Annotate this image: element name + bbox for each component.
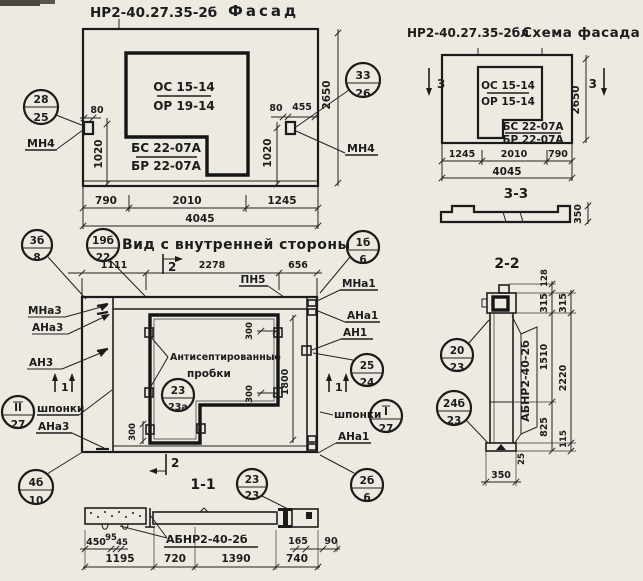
inner-view-drawing: 3б 8 19б 22 Вид с внутренней стороны 1б …	[2, 229, 402, 507]
svg-text:МН4: МН4	[347, 142, 375, 155]
svg-text:1б: 1б	[356, 237, 371, 249]
svg-text:4б: 4б	[29, 477, 44, 489]
svg-text:АНа3: АНа3	[32, 322, 63, 334]
svg-text:6: 6	[359, 254, 366, 266]
svg-text:20: 20	[450, 345, 465, 357]
callout-28-25: 28 25	[24, 90, 84, 126]
dim-455: 455	[292, 102, 312, 113]
dim-2010-schema: 2010	[501, 149, 528, 160]
section-3-mark-right: 3	[589, 68, 607, 96]
beam-label-pn5: ПН5	[239, 274, 284, 297]
facade-title: Фасад	[228, 2, 299, 20]
dim-2010: 2010	[172, 195, 201, 207]
inner-top-dims: 1111 2278 656	[68, 260, 322, 297]
dim-4045: 4045	[185, 213, 214, 225]
dim-720: 720	[164, 553, 186, 565]
label-ana3-bottom: АНа3	[36, 421, 104, 448]
label-mna1: МНа1	[317, 278, 378, 301]
facade-panel-mark-top: БС 22-07А	[131, 141, 202, 155]
svg-text:33: 33	[355, 69, 370, 82]
section-1-mark-right: 1	[326, 373, 349, 394]
svg-text:24б: 24б	[443, 398, 465, 410]
dim-825: 825	[539, 417, 550, 437]
svg-text:АНа3: АНа3	[38, 421, 69, 433]
dim-25: 25	[517, 453, 527, 465]
svg-text:10: 10	[29, 495, 44, 507]
svg-text:19б: 19б	[92, 235, 114, 247]
svg-text:ПН5: ПН5	[241, 274, 266, 286]
anchor-label-left: МН4	[25, 130, 83, 150]
svg-text:23: 23	[450, 362, 465, 374]
svg-text:2: 2	[168, 260, 176, 274]
svg-text:МНа3: МНа3	[28, 305, 62, 317]
svg-text:шпонки: шпонки	[37, 403, 84, 415]
callout-23-23a: 23 23а	[162, 379, 194, 413]
section-1-1-label: АБНР2-40-2б	[120, 515, 258, 547]
facade-dim-right-height	[274, 122, 280, 187]
section-1-1-profile	[85, 508, 318, 529]
svg-text:Антисептированные: Антисептированные	[170, 352, 281, 363]
section-3-3: 3-3 350	[441, 186, 591, 225]
svg-text:2: 2	[171, 456, 179, 470]
dim-1020-left: 1020	[93, 139, 105, 168]
svg-text:24: 24	[360, 377, 375, 389]
dim-80-right: 80	[269, 103, 283, 114]
anchor-mna1-top	[308, 300, 316, 306]
facade-dim-height	[335, 29, 341, 186]
dim-2650-schema: 2650	[570, 85, 582, 114]
dim-1245: 1245	[267, 195, 296, 207]
label-mna3: МНа3	[28, 305, 108, 317]
facade-code: НР2-40.27.35-2б	[90, 5, 217, 21]
schema-panel-mark-bottom: БР 22-07А	[502, 134, 564, 146]
dim-656: 656	[288, 260, 308, 271]
drawing-sheet: НР2-40.27.35-2б Фасад ОС 15-14 ОР 19-14 …	[0, 0, 643, 581]
facade-drawing: НР2-40.27.35-2б Фасад ОС 15-14 ОР 19-14 …	[24, 2, 380, 229]
svg-text:28: 28	[33, 93, 48, 106]
dim-2220: 2220	[558, 364, 569, 391]
section-2-2: 2-2 АБНР2-40-2б	[437, 256, 576, 486]
schema-title: Схема фасада	[522, 25, 640, 41]
facade-anchor-left	[84, 122, 93, 134]
svg-text:23а: 23а	[168, 402, 188, 413]
facade-anchor-right	[286, 122, 295, 134]
facade-opening-mark-top: ОС 15-14	[153, 80, 215, 94]
section-1-mark-left: 1	[52, 373, 75, 394]
blueprint-canvas: НР2-40.27.35-2б Фасад ОС 15-14 ОР 19-14 …	[0, 0, 643, 581]
inner-view-title: Вид с внутренней стороны	[122, 237, 351, 253]
svg-text:27: 27	[11, 419, 26, 431]
schema-opening-mark-top: ОС 15-14	[481, 80, 535, 92]
svg-text:300: 300	[245, 322, 255, 340]
svg-text:23: 23	[245, 490, 260, 502]
svg-text:2б: 2б	[360, 475, 375, 487]
svg-text:II: II	[14, 402, 22, 414]
dim-1245-schema: 1245	[449, 149, 475, 160]
callout-3b-8: 3б 8	[22, 230, 86, 299]
dim-45: 45	[116, 538, 128, 548]
dim-2278: 2278	[199, 260, 226, 271]
dim-790-schema: 790	[548, 149, 568, 160]
plug-dim-3: 300	[128, 421, 146, 444]
callout-II-27: II 27	[2, 396, 34, 431]
svg-text:23: 23	[447, 415, 462, 427]
anchor-label-right: МН4	[296, 131, 378, 155]
dim-128: 128	[540, 269, 550, 287]
section-2-2-label: АБНР2-40-2б	[512, 316, 537, 444]
svg-text:1: 1	[61, 381, 69, 394]
callout-25-24: 25 24	[313, 353, 383, 389]
dim-80-left: 80	[90, 105, 104, 116]
schema-bottom-dims: 1245 2010 790 4045	[439, 143, 575, 181]
label-an1: АН1	[312, 327, 373, 350]
dim-1111: 1111	[101, 260, 127, 271]
dim-350-33: 350	[573, 204, 584, 224]
section-1-1: 1-1 23 23 АБНР2-40-2б	[80, 469, 340, 570]
callout-24b-23: 24б 23	[437, 391, 488, 443]
svg-text:МНа1: МНа1	[342, 278, 376, 290]
dim-315-a: 315	[539, 293, 550, 313]
svg-text:3: 3	[437, 77, 445, 91]
svg-text:пробки: пробки	[187, 368, 231, 380]
dim-740: 740	[286, 553, 308, 565]
dim-1020-right: 1020	[262, 138, 274, 167]
dim-1800: 1800	[280, 368, 291, 395]
section-2-mark-bottom: 2	[149, 454, 179, 475]
schema-dim-height	[583, 55, 589, 143]
facade-opening-mark-bottom: ОР 19-14	[153, 99, 215, 113]
schema-drawing: НР2-40.27.35-2бл Схема фасада ОС 15-14 О…	[407, 25, 640, 181]
label-shponki-left: шпонки	[37, 390, 112, 415]
label-an3: АН3	[27, 350, 107, 369]
svg-text:23: 23	[171, 385, 186, 397]
svg-text:27: 27	[379, 423, 394, 435]
section-2-mark-top: 2	[163, 254, 183, 274]
facade-panel-mark-bottom: БР 22-07А	[131, 159, 201, 173]
svg-text:6: 6	[363, 492, 370, 504]
svg-text:МН4: МН4	[27, 137, 55, 150]
section-3-3-dim	[585, 202, 591, 225]
dim-115: 115	[559, 430, 569, 448]
dim-450: 450	[86, 537, 106, 548]
dim-790: 790	[95, 195, 117, 207]
svg-text:300: 300	[128, 423, 138, 441]
svg-text:АНа1: АНа1	[347, 310, 378, 322]
dim-1195: 1195	[105, 553, 134, 565]
svg-text:25: 25	[360, 360, 375, 372]
callout-2b-6: 2б 6	[320, 455, 383, 504]
svg-text:26: 26	[355, 87, 371, 100]
svg-text:АН1: АН1	[343, 327, 367, 339]
dim-1390: 1390	[221, 553, 250, 565]
section-1-1-title: 1-1	[190, 477, 215, 493]
anchor-ana1-top	[308, 309, 316, 315]
dim-1510: 1510	[539, 343, 550, 370]
label-ana1-bottom: АНа1	[318, 431, 371, 453]
svg-text:1: 1	[335, 381, 343, 394]
svg-text:АН3: АН3	[29, 357, 53, 369]
dim-4045-schema: 4045	[492, 166, 521, 178]
svg-text:3: 3	[589, 77, 597, 91]
anchor-right-bottom-b	[308, 444, 316, 450]
scan-artifact	[0, 0, 55, 6]
svg-text:АБНР2-40-2б: АБНР2-40-2б	[166, 533, 248, 546]
callout-4b-10: 4б 10	[19, 453, 81, 507]
svg-text:23: 23	[245, 474, 260, 486]
section-2-2-title: 2-2	[494, 256, 519, 272]
svg-text:3б: 3б	[30, 235, 45, 247]
svg-text:300: 300	[245, 385, 255, 403]
callout-20-23: 20 23	[441, 320, 489, 374]
svg-text:25: 25	[33, 111, 48, 124]
svg-text:АНа1: АНа1	[338, 431, 369, 443]
anchor-right-bottom-a	[308, 436, 316, 442]
schema-code: НР2-40.27.35-2бл	[407, 26, 529, 40]
label-ana1: АНа1	[318, 310, 380, 322]
dim-315-b: 315	[558, 293, 569, 313]
svg-text:АБНР2-40-2б: АБНР2-40-2б	[519, 340, 532, 422]
section-3-3-title: 3-3	[504, 186, 528, 202]
dim-90: 90	[324, 536, 338, 547]
section-2-2-profile	[482, 285, 516, 451]
svg-text:8: 8	[33, 252, 40, 264]
schema-opening-mark-bottom: ОР 15-14	[481, 96, 535, 108]
callout-23-23: 23 23	[237, 469, 288, 509]
facade-bottom-dims: 790 2010 1245 4045	[80, 186, 321, 229]
schema-panel-mark-top: БС 22-07А	[502, 121, 564, 133]
dim-165: 165	[288, 536, 308, 547]
svg-text:I: I	[384, 406, 388, 418]
dim-350-22: 350	[491, 470, 511, 481]
